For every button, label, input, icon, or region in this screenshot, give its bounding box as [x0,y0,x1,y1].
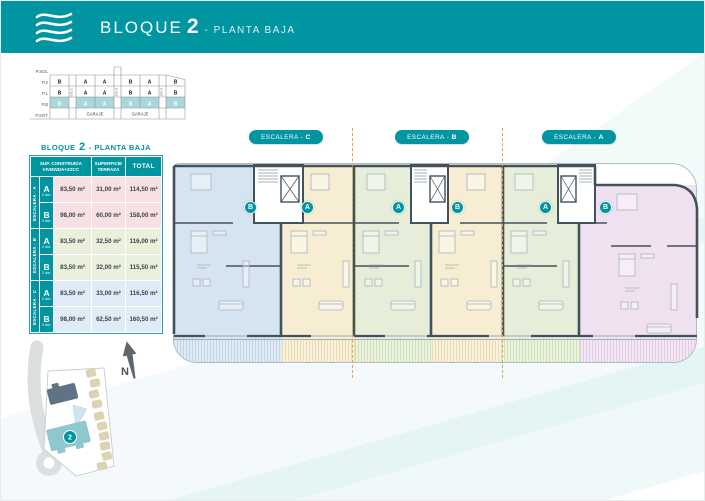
terrace-escalera-b-b [432,339,504,363]
unit-region-escalera-a-a [504,164,580,339]
unit-badge-a: A [301,201,314,214]
section-cell-pb: B [58,102,62,108]
floor-label: P.B [41,102,48,107]
terrace-value: 32,00 m² [92,255,125,280]
floor-plan [171,126,705,378]
section-cell-pb: A [148,102,152,108]
built-value: 83,50 m² [54,281,90,306]
section-cell-pb: B [174,102,178,108]
group-label-escalera-b: ESCALERA - B [31,229,39,280]
section-cell-pb: A [84,102,88,108]
section-cell-pb: A [103,102,107,108]
esc-column-label: ESC-C [70,88,74,97]
col-header-built-l1: SUP. CONSTRUIDA [31,161,91,167]
total-value: 160,50 m² [126,307,161,332]
unit-region-escalera-a-b [580,164,697,339]
section-cell: A [84,80,88,86]
unit-badge-b: B [244,201,257,214]
section-cell: B [129,91,133,97]
unit-badge-cell: B3 dor. [40,307,53,332]
esc-column-label: ESC-A [160,88,164,97]
garage-label: GARAJE [87,112,104,117]
floor-label: P.1 [42,91,49,96]
page-title: BLOQUE 2 - PLANTA BAJA [100,15,296,39]
unit-badge-b: B [451,201,464,214]
floor-label: P.2 [42,80,49,85]
col-header-built: SUP. CONSTRUIDA VIVIENDA+ZZCC [31,157,91,176]
unit-badge-cell: A2 dor. [40,281,53,306]
block-2-badge-label: 2 [68,435,72,442]
section-cell: A [103,80,107,86]
title-sub: - PLANTA BAJA [205,25,296,36]
brochure-page: BLOQUE 2 - PLANTA BAJA P.SOL P.2 P.1 P.B… [0,0,705,501]
title-number: 2 [187,15,201,39]
built-value: 83,50 m² [54,229,90,254]
unit-badge-a: A [392,201,405,214]
section-cell: A [84,91,88,97]
terrace-escalera-c-a [282,339,355,363]
building-section-diagram: P.SOL P.2 P.1 P.B P.SOT B A A B [28,65,190,125]
site-map: 2 N [21,337,166,497]
built-value: 83,50 m² [54,255,90,280]
north-label: N [121,366,129,378]
section-cell: B [58,91,62,97]
unit-badge-cell: A2 dor. [40,229,53,254]
unit-badge-cell: B2 dor. [40,255,53,280]
garage-label: GARAJE [132,112,149,117]
unit-badge-a: A [539,201,552,214]
group-label-escalera-c: ESCALERA - C [31,281,39,332]
unit-badge-cell: B3 dor. [40,203,53,228]
unit-region-escalera-b-a [355,164,432,339]
section-divider-dashed [352,128,353,378]
terrace-escalera-a-a [504,339,580,363]
roundabout-center [44,458,55,469]
col-header-total: TOTAL [126,157,161,176]
section-cell: B [129,80,133,86]
surface-table: SUP. CONSTRUIDA VIVIENDA+ZZCC SUPERFICIE… [29,155,163,334]
table-title-number: 2 [79,141,86,153]
terrace-escalera-b-a [355,339,432,363]
col-header-terrace-l1: SUPERFICIE [92,161,125,167]
total-value: 116,50 m² [126,281,161,306]
terrace-escalera-c-b [174,339,282,363]
total-value: 115,50 m² [126,255,161,280]
escalera-a-pill: ESCALERA - A [542,130,616,144]
total-value: 158,00 m² [126,203,161,228]
header-bar: BLOQUE 2 - PLANTA BAJA [1,1,705,53]
area-table-title: BLOQUE 2 - PLANTA BAJA [29,141,163,153]
unit-region-escalera-c-b [174,164,282,339]
unit-badge-b: B [599,201,612,214]
col-header-terrace: SUPERFICIE TERRAZA [92,157,125,176]
terrace-value: 31,00 m² [92,177,125,202]
section-cell: A [148,91,152,97]
section-cell: A [103,91,107,97]
total-value: 114,50 m² [126,177,161,202]
group-label-escalera-a: ESCALERA - A [31,177,39,228]
pb-highlight-row [50,97,185,108]
unit-region-escalera-c-a [282,164,355,339]
floor-label: P.SOT [35,113,48,118]
escalera-b-pill: ESCALERA - B [395,130,469,144]
section-divider-dashed [502,128,503,378]
col-header-built-l2: VIVIENDA+ZZCC [31,167,91,173]
title-bloque: BLOQUE [100,18,183,38]
waves-logo-icon [34,8,74,46]
table-title-sub: - PLANTA BAJA [89,143,151,152]
built-value: 83,50 m² [54,177,90,202]
floor-label: P.SOL [36,69,49,74]
terrace-value: 32,50 m² [92,229,125,254]
built-value: 98,00 m² [54,203,90,228]
unit-region-escalera-b-b [432,164,504,339]
section-cell: B [174,80,178,86]
section-cell: B [58,80,62,86]
terrace-value: 33,00 m² [92,281,125,306]
col-header-terrace-l2: TERRAZA [92,167,125,173]
section-cell: B [174,91,178,97]
section-cell: A [148,80,152,86]
built-value: 98,00 m² [54,307,90,332]
table-title-bloque: BLOQUE [41,143,75,152]
plan-roof-step [596,164,697,185]
terrace-value: 60,00 m² [92,203,125,228]
terrace-value: 62,50 m² [92,307,125,332]
section-cell-pb: B [129,102,133,108]
terrace-escalera-a-b [580,339,697,363]
escalera-c-pill: ESCALERA - C [249,130,323,144]
area-table: BLOQUE 2 - PLANTA BAJA SUP. CONSTRUIDA V… [29,141,163,334]
unit-badge-cell: A2 dor. [40,177,53,202]
total-value: 116,00 m² [126,229,161,254]
floor-plan-body [173,163,697,363]
esc-column-label: ESC-B [115,88,119,97]
